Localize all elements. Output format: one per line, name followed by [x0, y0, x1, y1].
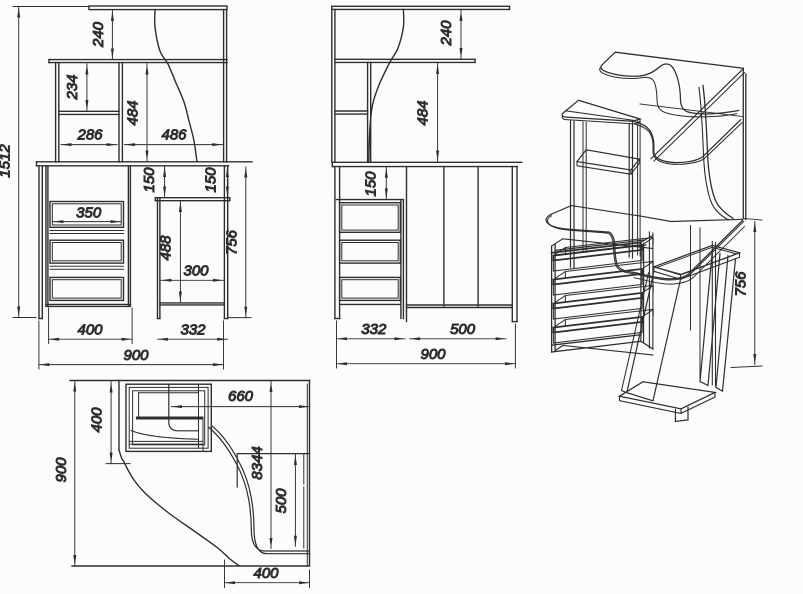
svg-text:400: 400 [253, 565, 279, 582]
svg-text:756: 756 [733, 271, 750, 297]
svg-text:240: 240 [438, 20, 455, 47]
svg-text:150: 150 [141, 167, 158, 193]
svg-text:332: 332 [361, 321, 387, 338]
svg-text:486: 486 [161, 127, 187, 144]
svg-text:150: 150 [363, 171, 380, 197]
svg-text:1512: 1512 [0, 144, 14, 178]
svg-text:484: 484 [415, 100, 432, 125]
svg-text:900: 900 [53, 457, 70, 483]
svg-text:500: 500 [450, 321, 476, 338]
svg-text:500: 500 [273, 488, 290, 514]
svg-text:234: 234 [64, 74, 81, 100]
svg-text:756: 756 [224, 229, 241, 255]
svg-text:660: 660 [228, 388, 254, 405]
svg-text:488: 488 [158, 235, 175, 261]
svg-text:900: 900 [123, 347, 149, 364]
svg-text:900: 900 [420, 346, 446, 363]
svg-text:240: 240 [90, 21, 107, 48]
svg-text:286: 286 [76, 127, 103, 144]
svg-text:350: 350 [76, 205, 102, 222]
svg-text:8344: 8344 [249, 446, 266, 479]
svg-text:332: 332 [180, 322, 206, 339]
svg-text:400: 400 [89, 407, 106, 433]
svg-text:484: 484 [125, 100, 142, 125]
svg-text:300: 300 [183, 262, 209, 279]
svg-text:400: 400 [77, 322, 103, 339]
svg-text:150: 150 [203, 167, 220, 193]
